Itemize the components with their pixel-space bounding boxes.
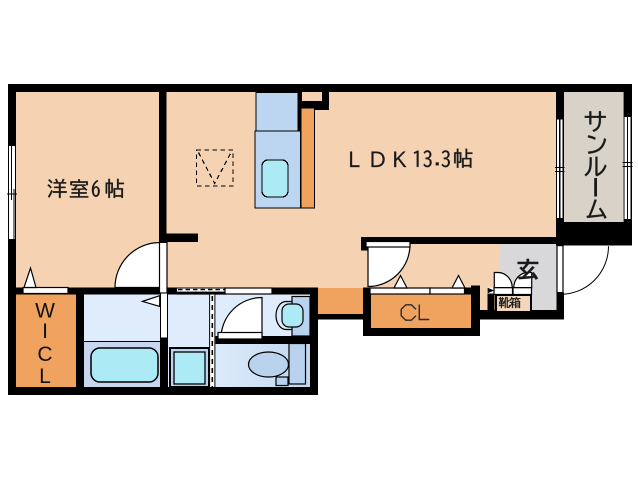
svg-text:I: I: [42, 320, 48, 343]
svg-text:L: L: [39, 365, 51, 388]
svg-text:C: C: [37, 343, 52, 366]
